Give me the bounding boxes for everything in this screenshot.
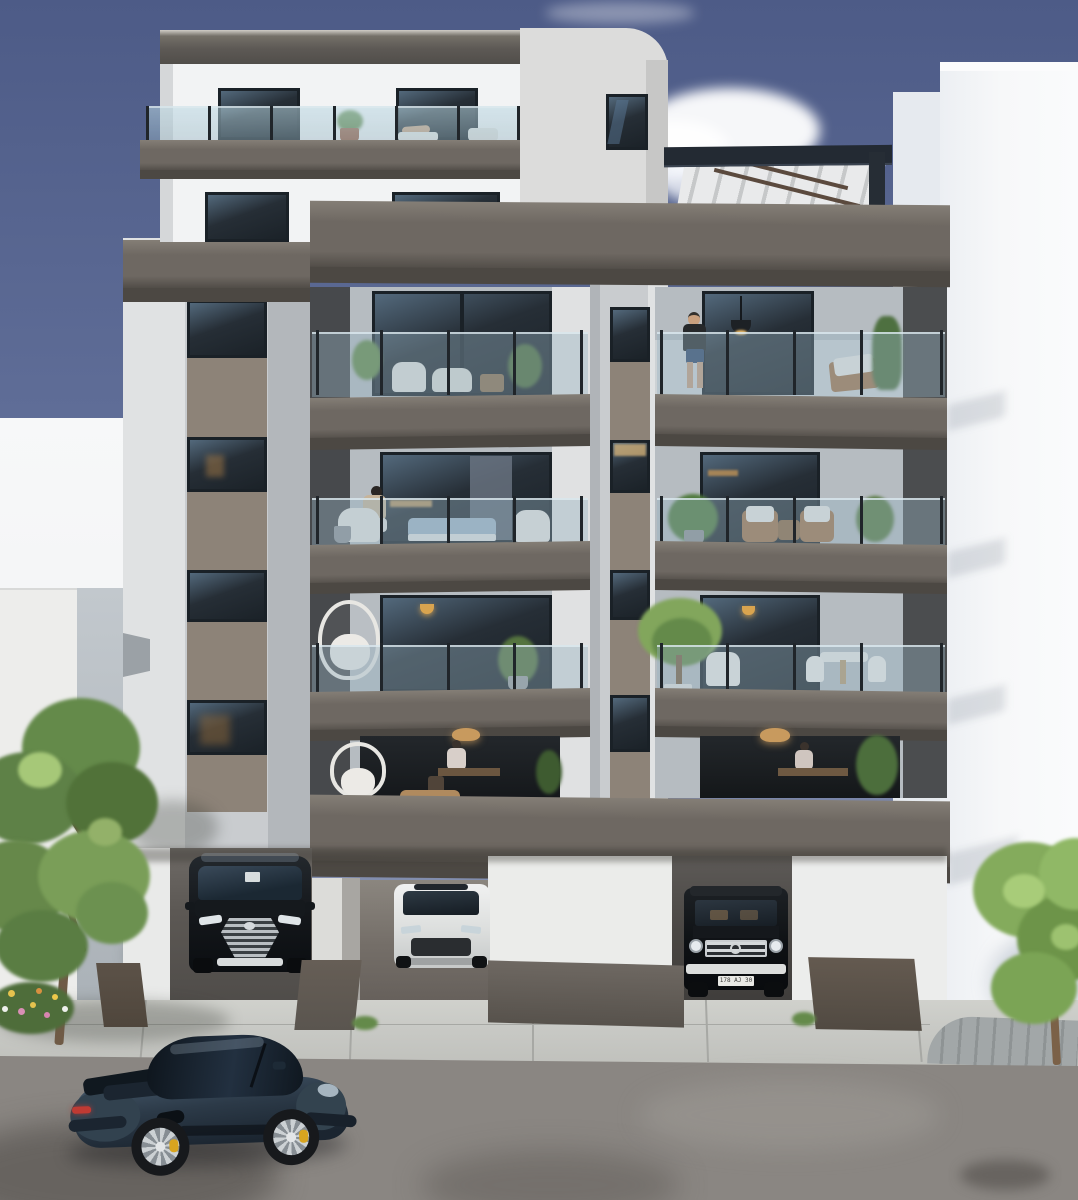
planter-center-left [294,960,361,1030]
railing-post [660,330,663,395]
penthouse-parapet [160,30,520,64]
railing-post [513,643,516,692]
railing-post [860,643,863,692]
railing-post [660,643,663,692]
stair-window-1 [187,300,267,358]
windshield-paper [245,872,260,882]
wsuv-sunroof [414,884,468,890]
left-tower-band [123,240,310,290]
railing-post [860,330,863,395]
left-tree [0,690,200,1050]
railing-post [316,643,319,692]
asphalt-stain [960,1160,1050,1190]
core-spandrel-2 [610,493,650,570]
gwagon: 178 AJ 30 [680,880,792,1002]
flower-pink [44,1012,50,1018]
flower-white [62,1006,68,1012]
spandrel-panel-3 [187,622,267,700]
railing-post [380,330,383,395]
concrete-tower-edge-shade [646,60,668,210]
railing-post [793,643,796,692]
desk-person-body [447,748,466,770]
gwagon-interior-hint [710,910,728,920]
interior-plant-large [856,735,898,795]
railing-post [447,496,450,544]
railing-post [447,643,450,692]
scene-apartment-building-render: 178 AJ 30 [0,0,1078,1200]
railing-post [793,330,796,395]
left-tower-band-underside [123,288,310,302]
core-window-1 [610,307,650,362]
wsuv-grille [411,938,471,956]
penthouse-slab-underside [140,170,520,179]
railing-post [860,496,863,544]
core-window-4 [610,695,650,752]
gwagon-roof [690,886,782,896]
foliage-highlight [88,818,122,846]
wsuv-tire [396,956,411,968]
flower-orange [36,988,42,994]
asphalt-light-patch [640,1080,940,1150]
suv-mirror [305,902,315,910]
foliage-blob [76,882,148,944]
wsuv-lower-trim [407,958,475,965]
mercedes-star-badge [730,943,741,954]
main-balcony-band [310,201,950,275]
pendant-cord [740,296,742,322]
railing-post [940,330,943,395]
porsche-911 [57,1025,362,1185]
railing-post [316,496,319,544]
door-mirror [273,1061,286,1069]
desk [438,768,500,776]
railing-4r [657,332,945,397]
suv-bumper-trim [217,958,283,966]
wsuv-tire [472,956,487,968]
center-column-left-shade [590,280,600,805]
railing-post [793,496,796,544]
railing-post [447,330,450,395]
gwagon-tire [764,982,784,997]
railing-post [726,643,729,692]
flower-white [2,1006,8,1012]
railing-3l [312,498,588,546]
railing-post [380,643,383,692]
flower-pink [18,1008,25,1015]
railing-4l [312,332,588,397]
penthouse-slab [140,140,520,172]
railing-2l [312,645,588,694]
core-spandrel-1 [610,362,650,440]
gwagon-headlight [689,939,703,953]
gwagon-headlight [769,939,783,953]
suv-hood [195,900,305,917]
stair-window-2 [187,437,267,492]
interior-plant [536,750,562,794]
foliage-highlight [1003,874,1045,908]
gwagon-plate: 178 AJ 30 [718,976,754,986]
pergola-beam [664,145,892,167]
pergola-post [869,152,885,210]
railing-post [380,496,383,544]
railing-post [660,496,663,544]
foliage-highlight [1051,924,1078,950]
planter-center-wall [488,960,684,1027]
gwagon-bumper [686,964,786,974]
wheel-front [262,1108,320,1166]
railing-3r [657,498,945,546]
brake-caliper [299,1130,308,1143]
gwagon-interior-hint [740,910,758,920]
gwagon-windshield [695,900,777,926]
upper-window-left-partial [205,192,289,242]
stair-window-4-interior-glow [200,715,230,745]
railing-post [726,330,729,395]
stair-window-3 [187,570,267,622]
gwagon-hood [693,926,779,938]
railing-post [513,330,516,395]
egg-chair-cushion [341,768,375,796]
table-person-body [795,750,813,770]
suv-badge [244,922,255,930]
wheel-rear [130,1117,190,1177]
foliage-blob [991,952,1077,1024]
flower-yellow [30,1002,36,1008]
white-suv [392,880,492,972]
railing-post [940,496,943,544]
railing-post [580,496,583,544]
suv-roof-highlight [201,853,299,862]
cloud-wisp [545,2,695,24]
spandrel-panel-1 [187,358,267,437]
foliage-blob [0,910,88,982]
railing-post [580,643,583,692]
interior-warm-strip [708,470,738,476]
left-tower-vent-detail [123,633,150,677]
core-window-2-glow [614,444,646,456]
railing-post [726,496,729,544]
right-tree [955,830,1078,1070]
spandrel-panel-2 [187,492,267,570]
railing-post [580,330,583,395]
railing-post [940,643,943,692]
planter-right-brown [808,957,922,1031]
railing-post [513,496,516,544]
foliage-highlight [18,752,62,788]
stair-window-2-curtain-glow [206,455,224,477]
taillight-strip [72,1106,91,1114]
railing-post [316,330,319,395]
flower-yellow [8,990,15,997]
brake-caliper [169,1139,178,1152]
gwagon-tire [688,982,708,997]
right-neighbor-parapet [940,62,1078,71]
railing-2r [657,645,945,694]
wsuv-windshield [403,891,479,915]
core-spandrel-4 [610,752,650,802]
planter-grass [792,1012,816,1026]
flower-yellow [52,994,58,1000]
black-suv [185,850,315,978]
dining-table-dark [778,768,848,776]
rattan-pendant [760,728,790,742]
